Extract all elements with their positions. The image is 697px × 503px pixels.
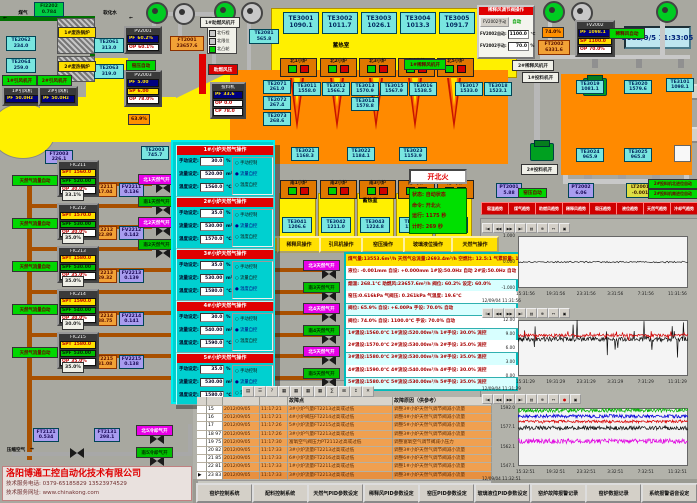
faceplate-row: PF33.6 — [213, 91, 243, 99]
chart2-series-magenta — [518, 439, 688, 444]
alarm-cell[interactable]: 6#小炉流量FT2216过高或过低 — [288, 455, 393, 463]
alarm-toolbar-icon-2[interactable]: ? — [266, 386, 278, 397]
radio-流量自控[interactable]: ● 流量自控 — [233, 221, 272, 232]
popup-field: 流量设定: 520.00 m³/h — [179, 170, 237, 179]
label-chip: 窑压自动 — [518, 188, 547, 198]
bottom-button-4[interactable]: 窑压PID参数设定 — [418, 483, 475, 503]
value-box-TE3015: TE30151567.9 — [380, 82, 408, 96]
burner-chip[interactable]: 北1小炉 — [280, 58, 317, 77]
value-box-TE3011: TE30111558.0 — [293, 82, 321, 96]
faceplate-row: OP70.0% — [578, 46, 612, 54]
radio-手动控制[interactable]: ○ 手动控制 — [233, 158, 272, 169]
value-box-TE3018: TE30181523.1 — [484, 82, 512, 96]
alarm-cell[interactable] — [197, 422, 207, 430]
alarm-cell[interactable]: 4#小炉阀压FT2214过高或过低 — [288, 414, 393, 422]
value-box-TE3043: TE30431224.8 — [360, 217, 390, 233]
alarm-header-2 — [223, 397, 260, 406]
alarm-cell[interactable]: 3#小炉气量FT2213过高或过低 — [288, 431, 393, 439]
alarm-cell[interactable]: 11:17:26 — [260, 431, 288, 439]
op-button-5[interactable]: 天然气操作 — [451, 236, 499, 253]
label-chip: 35.0% — [62, 362, 84, 373]
popup-field: 温度设定: 1570.0 ℃ — [179, 235, 231, 244]
alarm-cell[interactable]: 11:17:33 — [260, 455, 288, 463]
alarm-cell[interactable]: 23 83 — [207, 472, 223, 480]
label-chip: 天然气流量自动 — [12, 304, 58, 315]
chart2-toolbar-icon-2[interactable]: ▶▶ — [504, 394, 515, 404]
chart1-xtick-2: 23:31:29 — [577, 379, 596, 384]
alarm-cell[interactable]: 2012/09/05 — [223, 455, 260, 463]
alarm-cell[interactable]: 2012/09/05 — [223, 447, 260, 455]
company-web: 技术服务网址: www.chinakong.com — [6, 489, 188, 498]
chart2-toolbar-icon-4[interactable]: ▤ — [526, 394, 537, 404]
radio-手动控制[interactable]: ○ 手动控制 — [233, 262, 272, 273]
alarm-cell[interactable]: 2012/09/05 — [223, 414, 260, 422]
alarm-cell[interactable]: 15 — [207, 406, 223, 414]
alarm-cell[interactable]: 18 97 — [207, 431, 223, 439]
chart0-xtick-3: 3:31:56 — [607, 291, 623, 296]
faceplate-PV2001: PV2001PF60.2%OP60.1% — [124, 26, 162, 54]
alarm-cell[interactable]: 调整4#小炉天然气调节阀减小流量 — [393, 414, 492, 422]
chart1-ylabel-3: 3.00 — [483, 359, 515, 364]
bottom-button-5[interactable]: 玻璃液位PID参数设定 — [474, 483, 531, 503]
alarm-cell[interactable] — [197, 447, 207, 455]
alarm-toolbar-icon-3[interactable]: ▦ — [278, 386, 290, 397]
faceplate-row: SPF520.00 — [60, 178, 96, 186]
label-chip: 2#稀释风机开 — [512, 60, 554, 71]
chart0-ylabel-1: 0.000 — [483, 259, 515, 264]
alarm-cell[interactable]: 19 75 — [207, 439, 223, 447]
value-box-FV2211: FV22110.136 — [119, 183, 144, 197]
chart1-ylabel-0: 12.00 — [483, 317, 515, 322]
chart0-toolbar-icon-4[interactable]: ▤ — [526, 223, 537, 233]
pipe-segment — [188, 424, 192, 456]
alarm-toolbar-icon-5[interactable]: ▦ — [302, 386, 314, 397]
trend-button-6[interactable]: 天然气趋势 — [643, 202, 671, 215]
bottom-button-0[interactable]: 窑炉控制系统 — [196, 483, 253, 503]
status-row: 状态: 自动状态 — [412, 190, 464, 201]
bottom-button-7[interactable]: 窑炉数据记录 — [585, 483, 642, 503]
alarm-toolbar-icon-8[interactable]: ⊞ — [338, 386, 350, 397]
radio-温度自控[interactable]: ○ 温度自控 — [233, 232, 272, 243]
alarm-cell[interactable]: 16 — [207, 414, 223, 422]
label-chip: 助燃风压 — [208, 64, 238, 75]
alarm-cell[interactable]: 调整3#小炉天然气调节阀减小流量 — [393, 472, 492, 480]
faceplate-row: SPT1580.0 — [60, 341, 96, 349]
bottom-button-6[interactable]: 窑炉故障报警记录 — [530, 483, 587, 503]
alarm-cell[interactable]: 11:17:26 — [260, 422, 288, 430]
faceplate-row: PF5.00 — [127, 79, 159, 87]
alarm-cell[interactable]: 2012/09/05 — [223, 439, 260, 447]
alarm-cell[interactable]: 调整1#小炉天然气调节阀减小流量 — [393, 463, 492, 471]
chart0-xtick-1: 19:31:56 — [546, 291, 565, 296]
chart2-toolbar-icon-3[interactable]: ▶I — [515, 394, 526, 404]
chart2-ylabel-3: 1547.1 — [483, 463, 515, 468]
popup-input[interactable]: 530.00 — [200, 274, 224, 283]
chart1-ylabel-1: 9.00 — [483, 331, 515, 336]
value-box-TE2071: TE2071261.0 — [263, 80, 291, 94]
chart1-xtick-5: 11:31:29 — [668, 379, 687, 384]
chart2-toolbar-icon-6[interactable]: ↔ — [548, 394, 559, 404]
chart1-xtick-0: 15:31:29 — [516, 379, 535, 384]
fan-icon — [656, 1, 678, 23]
popup-input[interactable]: 1590.0 — [200, 339, 224, 348]
chart2-ylabel-0: 1592.0 — [483, 405, 515, 410]
chart2-ylabel-1: 1577.1 — [483, 424, 515, 429]
value-box-TE2064: TE2064259.0 — [6, 58, 36, 73]
label-chip: 天然气流量自动 — [12, 347, 58, 358]
value-box-TE3020: TE30201579.6 — [624, 80, 652, 94]
chart1-toolbar-icon-7[interactable]: ▣ — [559, 308, 570, 318]
chart0-toolbar-icon-1[interactable]: ◀◀ — [493, 223, 504, 233]
dilution-row: FV2002自动: 1100.0 ℃ — [480, 30, 532, 39]
alarm-header-4: 故障点 — [288, 397, 393, 406]
chart0-series-svg — [518, 236, 688, 288]
popup-input[interactable]: 35.0 — [200, 365, 224, 374]
chart2-xtick-1: 19:32:51 — [546, 469, 565, 474]
alarm-toolbar-icon-1[interactable]: ☰ — [254, 386, 266, 397]
label-chip: 2#废热锅炉 — [58, 61, 96, 72]
fan-icon — [173, 3, 195, 25]
op-button-1[interactable]: 稀释风操作 — [277, 236, 321, 253]
value-box-TE3005: TE30051091.7 — [439, 12, 475, 34]
popup-input[interactable]: 530.00 — [200, 378, 224, 387]
chart0-toolbar-icon-6[interactable]: ↔ — [548, 223, 559, 233]
chart2-toolbar-icon-8[interactable]: ▣ — [570, 394, 581, 404]
faceplate-投料机: 投料机PF33.6OP0.0CP78.0 — [210, 82, 246, 119]
label-chip: 33.1% — [62, 190, 84, 201]
status-row: 命令: 开北火 — [412, 201, 464, 212]
chart2-series-green — [518, 408, 688, 413]
chart0-toolbar-icon-5[interactable]: ⊕ — [537, 223, 548, 233]
label-chip: 天然气流量自动 — [12, 175, 58, 186]
value-box-TE2063: TE2063319.0 — [94, 64, 124, 79]
faceplate-row: SPT1560.0 — [60, 169, 96, 177]
chart2-xtick-0: 15:32:51 — [516, 469, 535, 474]
alarm-cell[interactable]: 调整3#小炉天然气调节阀减小流量 — [393, 406, 492, 414]
trend-button-1[interactable]: 煤气趋势 — [508, 202, 536, 215]
chart2-toolbar-icon-0[interactable]: I◀ — [482, 394, 493, 404]
company-panel: 洛阳博通工控自动化技术有限公司 技术服务电话: 0379-65185829 13… — [2, 466, 192, 501]
alarm-header-1 — [207, 397, 223, 406]
value-box-TE3101: TE31011098.1 — [666, 78, 694, 92]
alarm-cell[interactable]: 3#小炉气量FT2213过高或过低 — [288, 406, 393, 414]
alarm-header-0 — [197, 397, 207, 406]
value-box-TE3003: TE30031026.1 — [361, 12, 397, 34]
popup-field: 手动设定: 30.0 % — [179, 157, 230, 166]
popup-field: 温度设定: 1580.0 ℃ — [179, 287, 231, 296]
alarm-toolbar-icon-4[interactable]: ▦ — [290, 386, 302, 397]
pipe-segment — [636, 59, 642, 68]
company-name: 洛阳博通工控自动化技术有限公司 — [6, 468, 188, 480]
radio-流量自控[interactable]: ○ 流量自控 — [233, 273, 272, 284]
radio-温度自控[interactable]: ● 温度自控 — [233, 284, 272, 295]
chart2-toolbar-icon-7[interactable]: ● — [559, 394, 570, 404]
value-box-FV2214: FV22140.141 — [119, 312, 144, 326]
value-box-TE3002: TE30021011.7 — [322, 12, 358, 34]
alarm-cell[interactable] — [197, 455, 207, 463]
status-row: 计时: 269 秒 — [412, 222, 464, 233]
radio-温度自控[interactable]: ○ 温度自控 — [233, 336, 272, 347]
chart2-start-label: 12/09/04 11:32:51 — [482, 476, 521, 481]
bottom-button-2[interactable]: 天然气PID参数设定 — [307, 483, 364, 503]
popup-section-1: 1#小炉天然气操作手动设定: 30.0 %流量设定: 520.00 m³/h温度… — [176, 145, 274, 197]
fan-icon — [146, 2, 168, 24]
faceplate-row: SPT1580.0 — [60, 255, 96, 263]
faceplate-row: CP78.0 — [213, 108, 243, 116]
label-chip: 35.0% — [62, 233, 84, 244]
label-chip: 北5冷却气开 — [136, 425, 173, 436]
faceplate-row: SPF540.00 — [60, 307, 96, 315]
value-box-FT2121: FT21210.534 — [33, 428, 59, 442]
popup-input[interactable]: 1560.0 — [200, 183, 224, 192]
alarm-cell[interactable]: 11:17:21 — [260, 414, 288, 422]
value-box-TE3021: TE30211168.3 — [291, 147, 319, 161]
alarm-cell[interactable]: 2012/09/05 — [223, 406, 260, 414]
alarm-header-5: 故障原因（供参考） — [393, 397, 492, 406]
alarm-toolbar-icon-9[interactable]: ↕ — [350, 386, 362, 397]
alarm-cell[interactable] — [197, 463, 207, 471]
value-box-TE2081: TE2081565.8 — [249, 29, 279, 44]
chart2-toolbar-icon-1[interactable]: ◀◀ — [493, 394, 504, 404]
alarm-toolbar-icon-7[interactable]: ∑ — [326, 386, 338, 397]
chart1-xtick-4: 7:31:29 — [638, 379, 654, 384]
label-chip: 煤气 — [12, 8, 34, 17]
chart2-series-black — [518, 426, 688, 430]
label-chip: 63.9% — [128, 114, 150, 125]
chart1-start-label: 12/09/04 11:31:29 — [482, 386, 521, 391]
trend-button-4[interactable]: 窑压趋势 — [589, 202, 617, 215]
burner-chip[interactable]: 北2小炉 — [320, 58, 357, 77]
pipe-segment — [540, 55, 690, 59]
chart0-toolbar-icon-3[interactable]: ▶I — [515, 223, 526, 233]
label-chip: 稀释风自动 — [609, 28, 645, 39]
label-chip: 北1天然气开 — [138, 174, 175, 185]
chart1-toolbar-icon-5[interactable]: ⊕ — [537, 308, 548, 318]
alarm-cell[interactable]: 富氧空气阀压力PT2112过高或过低 — [288, 439, 393, 447]
label-chip: 压缩空气 — [2, 445, 30, 454]
popup-input[interactable]: 35.0 — [200, 261, 224, 270]
trend-button-5[interactable]: 液位趋势 — [616, 202, 644, 215]
faceplate-row: PF50.0Hz — [41, 95, 75, 103]
popup-input[interactable]: 520.00 — [200, 170, 224, 179]
value-box-TE3019: TE30191081.1 — [576, 80, 604, 94]
alarm-cell[interactable]: 11:17:30 — [260, 439, 288, 447]
company-phone: 技术服务电话: 0379-65185829 13523974529 — [6, 480, 188, 489]
popup-input[interactable]: 30.0 — [200, 313, 224, 322]
alarm-cell[interactable]: 调整5#小炉天然气调节阀减小流量 — [393, 422, 492, 430]
popup-field: 手动设定: 35.0 % — [179, 365, 230, 374]
burner-chip[interactable]: 南2小炉 — [320, 180, 357, 199]
value-box-FI2202: FI22020.784 — [34, 2, 64, 17]
label-chip: 北5天然气开 — [303, 346, 340, 357]
chart0-start-label: 12/09/04 11:31:56 — [482, 298, 521, 303]
alarm-cell[interactable]: 11:17:33 — [260, 447, 288, 455]
alarm-cell[interactable] — [197, 439, 207, 447]
value-box-TE3022: TE30221184.1 — [347, 147, 375, 161]
radio-流量自控[interactable]: ● 流量自控 — [233, 169, 272, 180]
popup-input[interactable]: 1580.0 — [200, 287, 224, 296]
radio-手动控制[interactable]: ○ 手动控制 — [233, 210, 272, 221]
alarm-cell[interactable]: 2012/09/05 — [223, 463, 260, 471]
chart1-toolbar-icon-6[interactable]: ↔ — [548, 308, 559, 318]
popup-input[interactable]: 30.0 — [200, 157, 224, 166]
chart1-series-svg — [518, 320, 688, 376]
radio-温度自控[interactable]: ○ 温度自控 — [233, 180, 272, 191]
alarm-cell[interactable]: 调整3#小炉天然气调节阀减小流量 — [393, 447, 492, 455]
label-chip: 1#引风机开 — [2, 75, 37, 86]
value-box-TE3004: TE30041013.3 — [400, 12, 436, 34]
alarm-cell[interactable]: 2012/09/05 — [223, 422, 260, 430]
alarm-toolbar-icon-10[interactable]: ✕ — [362, 386, 374, 397]
chart2-series-svg — [518, 408, 688, 466]
value-box-TE3023: TE30231153.9 — [399, 147, 427, 161]
alarm-cell[interactable]: 调整6#小炉天然气调节阀减小流量 — [393, 455, 492, 463]
alarm-cell[interactable]: 2012/09/05 — [223, 472, 260, 480]
chart1-xtick-3: 3:31:29 — [607, 379, 623, 384]
alarm-cell[interactable]: 21 85 — [207, 455, 223, 463]
alarm-cell[interactable] — [197, 406, 207, 414]
alarm-cell[interactable]: 22 81 — [207, 463, 223, 471]
label-chip: 窑压自动 — [126, 60, 156, 71]
burner-gas-popup: 1#小炉天然气操作手动设定: 30.0 %流量设定: 520.00 m³/h温度… — [171, 140, 275, 404]
value-box-TE3041: TE30411206.6 — [282, 217, 312, 233]
op-button-4[interactable]: 玻璃液位操作 — [403, 236, 453, 253]
value-box-TE3013: TE30131570.9 — [351, 82, 379, 96]
alarm-cell[interactable]: 3#小炉流量FT2213过高或过低 — [288, 447, 393, 455]
bottom-button-3[interactable]: 稀释风PID参数设定 — [363, 483, 420, 503]
faceplate-row: SP6.00 — [127, 88, 159, 96]
alarm-cell[interactable]: ▶ — [197, 472, 207, 480]
alarm-toolbar-icon-6[interactable]: ▦ — [314, 386, 326, 397]
trend-button-3[interactable]: 稀释风趋势 — [562, 202, 590, 215]
status-row: 运行: 1175 秒 — [412, 211, 464, 222]
dilution-input[interactable]: 1100.0 — [508, 30, 529, 39]
faceplate-row: OP60.1% — [127, 44, 159, 52]
chart0-xtick-4: 7:31:56 — [638, 291, 654, 296]
value-box-TE2073: TE2073268.6 — [263, 112, 291, 126]
radio-流量自控[interactable]: ● 流量自控 — [233, 325, 272, 336]
popup-input[interactable]: 540.00 — [200, 326, 224, 335]
label-chip: 南5冷却气开 — [136, 447, 173, 458]
pipe-segment — [678, 59, 684, 68]
alarm-cell[interactable] — [197, 414, 207, 422]
chart1-toolbar-icon-4[interactable]: ▤ — [526, 308, 537, 318]
alarm-cell[interactable]: 11:17:21 — [260, 406, 288, 414]
pipe-segment — [592, 59, 598, 68]
faceplate-PV2003: PV2003PF5.00SP6.00OP78.0% — [124, 70, 162, 107]
alarm-cell[interactable]: 3#小炉流量FT2213过高或过低 — [288, 472, 393, 480]
value-box-TE2062: TE2062234.0 — [6, 36, 36, 51]
bottom-button-8[interactable]: 系统报警语音设定 — [641, 483, 697, 503]
feeder-machine-icon — [530, 143, 554, 161]
value-box-TE2061: TE2061313.0 — [94, 38, 124, 53]
dilution-row: FV2002手动: 70.0 % — [480, 42, 532, 51]
radio-手动控制[interactable]: ○ 手动控制 — [233, 366, 272, 377]
trend-button-0[interactable]: 窑温趋势 — [481, 202, 509, 215]
alarm-cell[interactable]: 5#小炉流量FT2215过高或过低 — [288, 422, 393, 430]
value-box-TE3016: TE30161538.5 — [409, 82, 437, 96]
popup-field: 手动设定: 35.0 % — [179, 261, 230, 270]
popup-field: 温度设定: 1560.0 ℃ — [179, 183, 231, 192]
faceplate-row: PF60.2% — [127, 35, 159, 43]
value-box-FT2131: FT2131298.1 — [94, 428, 120, 442]
popup-field: 流量设定: 540.00 m³/h — [179, 326, 237, 335]
popup-input[interactable]: 530.00 — [200, 222, 224, 231]
label-chip: 天然气流量自动 — [12, 218, 58, 229]
value-box-TE3042: TE30421211.0 — [321, 217, 351, 233]
faceplate-1#引风机: 1#引风机PF50.0Hz — [2, 86, 42, 106]
alarm-cell[interactable]: 2012/09/05 — [223, 431, 260, 439]
alarm-cell[interactable] — [197, 431, 207, 439]
value-box-FT2001: FT200123657.6 — [170, 36, 204, 51]
popup-mode-radios: ○ 手动控制○ 流量自控● 温度自控 — [232, 261, 273, 299]
label-chip: 1#废热锅炉 — [58, 27, 96, 38]
trend-button-2[interactable]: 助燃风趋势 — [535, 202, 563, 215]
chart2-toolbar-icon-5[interactable]: ⊕ — [537, 394, 548, 404]
trend-button-7[interactable]: 冷却气趋势 — [670, 202, 697, 215]
value-box-TE3017: TE30171533.0 — [455, 82, 483, 96]
alarm-toolbar-icon-0[interactable]: ▤ — [242, 386, 254, 397]
faceplate-row: PF1098.1 — [578, 29, 612, 37]
alarm-cell[interactable]: 17 — [207, 422, 223, 430]
burner-chip[interactable]: 南1小炉 — [280, 180, 317, 199]
popup-input[interactable]: 1570.0 — [200, 235, 224, 244]
label-chip: ← — [0, 14, 10, 23]
alarm-cell[interactable]: 调整富氧空气调节阀减小压力 — [393, 439, 492, 447]
op-button-3[interactable]: 窑压操作 — [361, 236, 405, 253]
burner-chip[interactable]: 北3小炉 — [359, 58, 396, 77]
regenerator-label-south: 蓄热室 — [357, 196, 383, 204]
faceplate-row: SPF530.00 — [60, 221, 96, 229]
label-chip: 软化水 — [96, 8, 124, 17]
chart1-ylabel-2: 6.00 — [483, 345, 515, 350]
popup-mode-radios: ○ 手动控制● 流量自控○ 温度自控 — [232, 313, 273, 351]
dilution-input[interactable]: 70.0 — [508, 42, 529, 51]
bottom-button-1[interactable]: 配料控制系统 — [252, 483, 309, 503]
fan-icon — [543, 1, 565, 23]
alarm-cell[interactable]: 1#小炉流量FT2211过高或过低 — [288, 463, 393, 471]
label-chip: 南5天然气开 — [303, 368, 340, 379]
radio-手动控制[interactable]: ○ 手动控制 — [233, 314, 272, 325]
alarm-cell[interactable]: 20 82 — [207, 447, 223, 455]
value-box-FV2215: FV22150.138 — [119, 355, 144, 369]
label-chip: 2#投料机开 — [521, 164, 558, 175]
dilution-panel-title: 稀释风调节阀操作 — [479, 7, 533, 15]
chart1-toolbar-icon-3[interactable]: ▶I — [515, 308, 526, 318]
faceplate-row: SPT1590.0 — [60, 298, 96, 306]
chart0-toolbar-icon-0[interactable]: I◀ — [482, 223, 493, 233]
popup-field: 流量设定: 530.00 m³/h — [179, 378, 237, 387]
alarm-cell[interactable]: 11:17:33 — [260, 472, 288, 480]
chart0-toolbar-icon-7[interactable]: ▣ — [559, 223, 570, 233]
fire-command-box: 开北火 — [409, 169, 467, 184]
faceplate-2#引风机: 2#引风机PF50.0Hz — [38, 86, 78, 106]
popup-mode-radios: ○ 手动控制● 流量自控○ 温度自控 — [232, 157, 273, 195]
chart0-xtick-5: 11:31:56 — [668, 291, 687, 296]
fv2002-manual-button[interactable]: FV2002手动 — [480, 17, 509, 27]
op-button-2[interactable]: 引风机操作 — [319, 236, 363, 253]
valve-icon[interactable] — [70, 448, 84, 458]
chart0-series-black — [518, 261, 688, 263]
alarm-cell[interactable]: 调整3#小炉天然气调节阀减小流量 — [393, 431, 492, 439]
value-box-TE2003: TE2003745.7 — [141, 146, 169, 160]
alarm-cell[interactable]: 11:17:33 — [260, 463, 288, 471]
label-chip: → — [28, 445, 36, 454]
faceplate-row: SPF530.00 — [60, 264, 96, 272]
popup-input[interactable]: 35.0 — [200, 209, 224, 218]
popup-field: 手动设定: 30.0 % — [179, 313, 230, 322]
chart0-toolbar-icon-2[interactable]: ▶▶ — [504, 223, 515, 233]
